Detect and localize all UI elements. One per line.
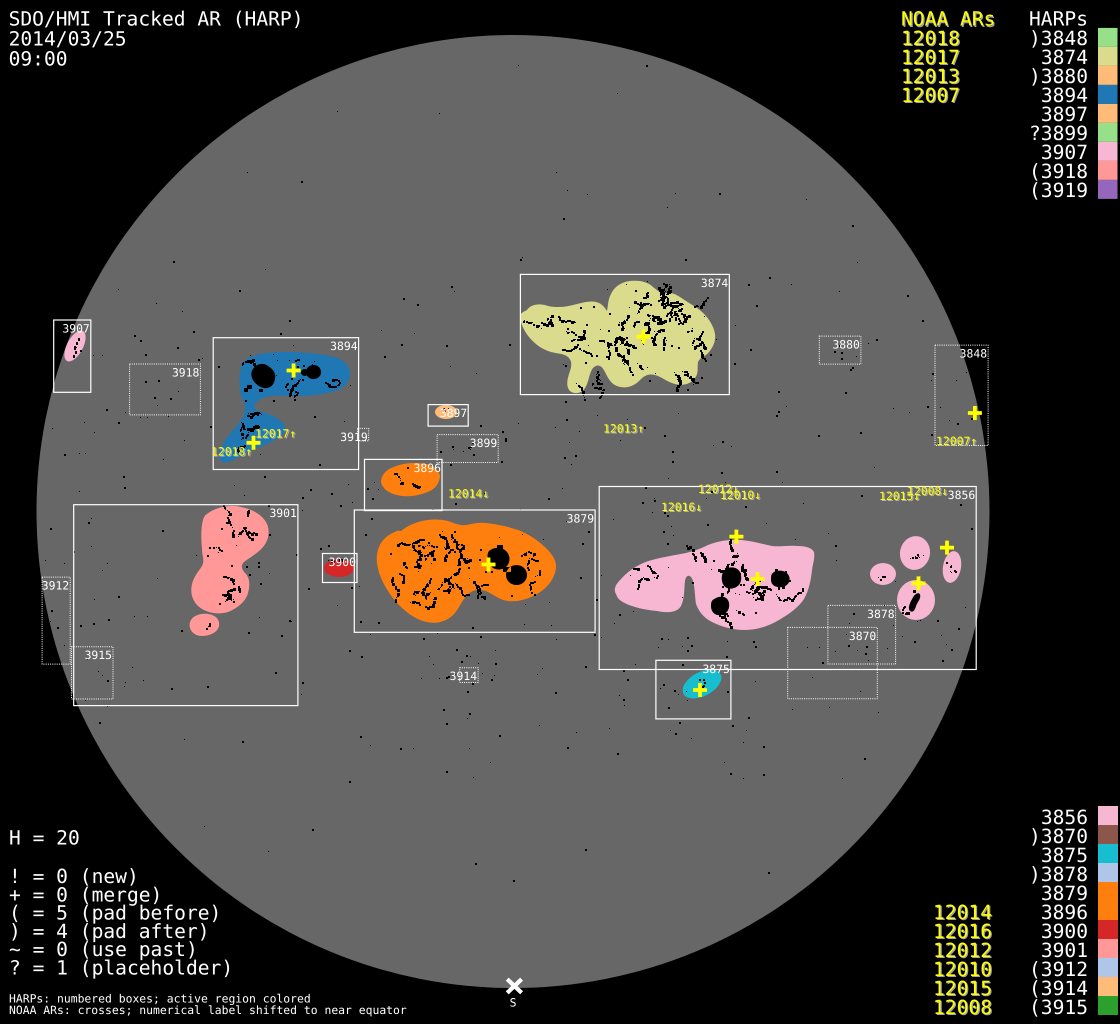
svg-text:3901: 3901 bbox=[269, 506, 297, 520]
svg-text:3894: 3894 bbox=[330, 339, 358, 353]
svg-text:12018↑: 12018↑ bbox=[211, 445, 252, 459]
svg-text:3874: 3874 bbox=[701, 276, 729, 290]
svg-text:3879: 3879 bbox=[567, 512, 595, 526]
svg-text:3878: 3878 bbox=[867, 607, 895, 621]
svg-text:NOAA ARs: crosses; numerical l: NOAA ARs: crosses; numerical label shift… bbox=[9, 1003, 407, 1017]
svg-text:3907: 3907 bbox=[62, 322, 89, 336]
svg-text:3897: 3897 bbox=[440, 406, 467, 420]
svg-text:12007: 12007 bbox=[901, 84, 960, 107]
svg-text:3900: 3900 bbox=[329, 555, 357, 569]
svg-text:(3915: (3915 bbox=[1029, 996, 1088, 1019]
svg-text:12010↓: 12010↓ bbox=[720, 488, 761, 502]
svg-text:12008↓: 12008↓ bbox=[907, 484, 948, 498]
svg-text:S: S bbox=[510, 996, 517, 1010]
svg-text:3899: 3899 bbox=[470, 436, 498, 450]
svg-text:(3919: (3919 bbox=[1029, 179, 1088, 202]
svg-text:12008: 12008 bbox=[933, 996, 992, 1019]
svg-text:? = 1 (placeholder): ? = 1 (placeholder) bbox=[9, 957, 233, 980]
svg-text:12017↑: 12017↑ bbox=[255, 427, 296, 441]
svg-text:3875: 3875 bbox=[702, 662, 729, 676]
svg-text:12016↓: 12016↓ bbox=[661, 500, 702, 514]
svg-text:3915: 3915 bbox=[85, 648, 112, 662]
svg-text:3912: 3912 bbox=[42, 579, 69, 593]
svg-text:H = 20: H = 20 bbox=[9, 827, 80, 850]
svg-text:3919: 3919 bbox=[340, 430, 368, 444]
svg-text:09:00: 09:00 bbox=[9, 48, 68, 71]
svg-text:3880: 3880 bbox=[832, 338, 860, 352]
svg-text:3856: 3856 bbox=[948, 488, 976, 502]
svg-text:3914: 3914 bbox=[450, 669, 478, 683]
svg-text:12013↑: 12013↑ bbox=[603, 422, 644, 436]
svg-text:3848: 3848 bbox=[960, 347, 988, 361]
svg-text:12014↓: 12014↓ bbox=[448, 487, 489, 501]
svg-text:3918: 3918 bbox=[172, 366, 200, 380]
svg-text:12007↑: 12007↑ bbox=[936, 434, 977, 448]
svg-text:3870: 3870 bbox=[849, 629, 877, 643]
